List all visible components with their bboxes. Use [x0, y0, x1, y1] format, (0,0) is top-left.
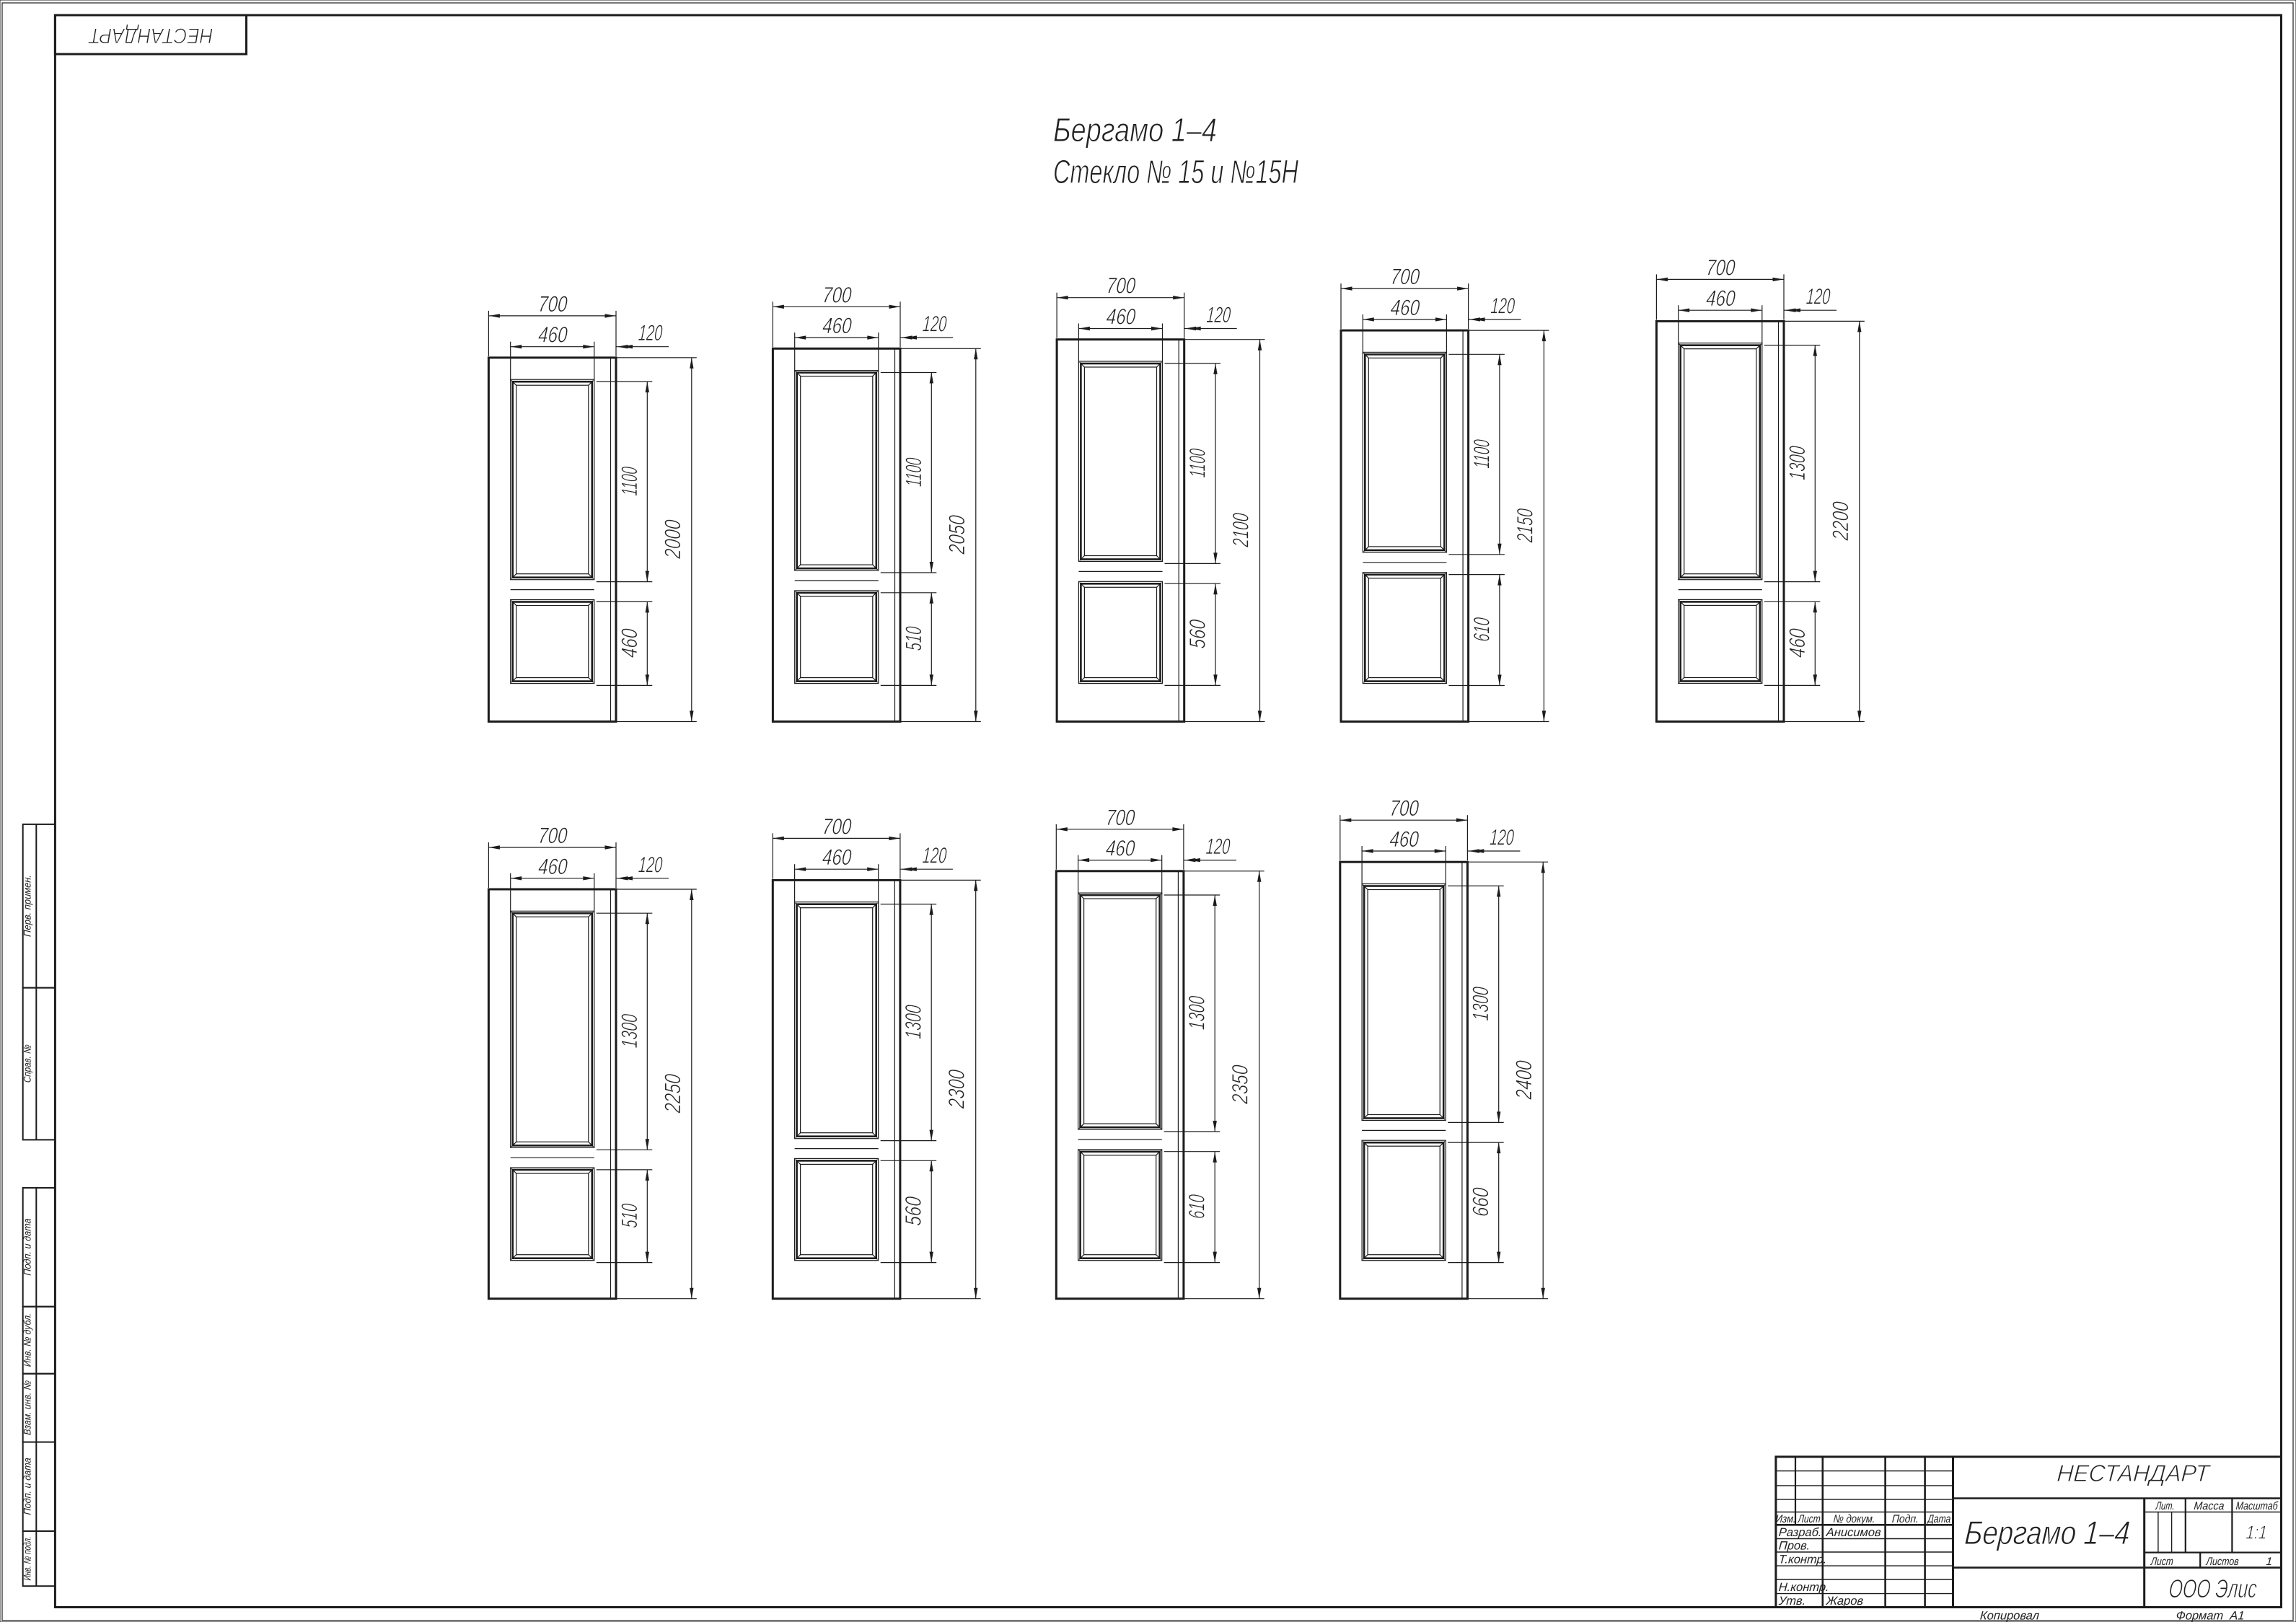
svg-text:120: 120 [1206, 302, 1232, 327]
svg-text:А1: А1 [2229, 1609, 2246, 1622]
svg-text:660: 660 [1468, 1186, 1493, 1217]
svg-text:2400: 2400 [1511, 1059, 1536, 1101]
svg-text:120: 120 [638, 852, 664, 877]
svg-text:460: 460 [1705, 286, 1736, 311]
svg-text:Дата: Дата [1926, 1513, 1951, 1525]
svg-text:Пров.: Пров. [1778, 1539, 1811, 1553]
svg-text:700: 700 [1105, 805, 1136, 830]
svg-text:700: 700 [1705, 255, 1736, 280]
svg-text:700: 700 [537, 291, 568, 317]
svg-text:700: 700 [1106, 273, 1137, 299]
svg-text:1:1: 1:1 [2246, 1522, 2268, 1543]
svg-text:120: 120 [1489, 825, 1515, 850]
svg-text:460: 460 [1785, 627, 1810, 658]
svg-text:460: 460 [1105, 836, 1136, 861]
svg-text:1300: 1300 [1785, 445, 1810, 480]
svg-text:Подп. и дата: Подп. и дата [22, 1218, 33, 1276]
svg-text:460: 460 [537, 854, 568, 879]
svg-text:ООО Элис: ООО Элис [2168, 1574, 2258, 1603]
svg-text:1: 1 [2266, 1556, 2273, 1568]
svg-text:460: 460 [537, 322, 568, 348]
svg-text:120: 120 [1805, 284, 1831, 309]
svg-text:700: 700 [537, 823, 568, 848]
svg-text:2100: 2100 [1228, 512, 1254, 548]
svg-text:Формат: Формат [2176, 1609, 2224, 1622]
svg-text:1300: 1300 [1468, 986, 1493, 1021]
svg-text:Разраб.: Разраб. [1778, 1525, 1822, 1539]
svg-text:Инв. № дубл.: Инв. № дубл. [22, 1313, 33, 1367]
svg-text:Инв. № подл.: Инв. № подл. [22, 1536, 33, 1581]
svg-text:610: 610 [1469, 617, 1494, 643]
svg-text:700: 700 [822, 814, 853, 839]
svg-text:1100: 1100 [1469, 438, 1494, 469]
svg-text:120: 120 [922, 312, 948, 337]
svg-text:Стекло № 15 и №15Н: Стекло № 15 и №15Н [1053, 153, 1299, 190]
svg-text:460: 460 [1390, 295, 1421, 320]
svg-text:2300: 2300 [944, 1069, 969, 1110]
svg-text:1100: 1100 [617, 466, 642, 496]
svg-text:2250: 2250 [660, 1073, 685, 1114]
svg-text:Бергамо 1–4: Бергамо 1–4 [1053, 111, 1217, 149]
svg-text:Утв.: Утв. [1777, 1594, 1806, 1608]
svg-text:2050: 2050 [944, 514, 969, 555]
svg-text:120: 120 [1490, 293, 1516, 318]
svg-text:1100: 1100 [901, 457, 926, 487]
svg-text:Лист: Лист [1797, 1513, 1821, 1525]
svg-text:510: 510 [901, 625, 926, 651]
svg-text:Т.контр.: Т.контр. [1778, 1553, 1827, 1566]
svg-text:560: 560 [1185, 619, 1210, 650]
svg-text:Анисимов: Анисимов [1825, 1525, 1881, 1539]
svg-text:№ докум.: № докум. [1833, 1513, 1875, 1525]
svg-text:460: 460 [822, 313, 853, 338]
svg-text:Подп. и дата: Подп. и дата [22, 1458, 33, 1515]
svg-text:460: 460 [1389, 827, 1420, 852]
svg-text:510: 510 [617, 1203, 642, 1229]
svg-text:1300: 1300 [617, 1013, 642, 1049]
svg-text:2200: 2200 [1828, 501, 1853, 542]
svg-text:Подп.: Подп. [1891, 1513, 1919, 1525]
svg-text:Копировал: Копировал [1979, 1609, 2039, 1622]
svg-text:1300: 1300 [901, 1004, 926, 1039]
svg-text:НЕСТАНДАРТ: НЕСТАНДАРТ [87, 24, 213, 48]
svg-text:Справ. №: Справ. № [22, 1044, 33, 1083]
svg-text:700: 700 [822, 282, 853, 307]
svg-text:2350: 2350 [1228, 1064, 1253, 1105]
svg-text:460: 460 [1106, 304, 1137, 330]
svg-text:Листов: Листов [2205, 1556, 2239, 1568]
svg-text:120: 120 [1205, 834, 1231, 859]
svg-text:Изм.: Изм. [1775, 1513, 1796, 1525]
svg-text:Жаров: Жаров [1825, 1594, 1864, 1608]
svg-text:120: 120 [638, 320, 664, 345]
svg-text:700: 700 [1389, 795, 1420, 821]
svg-text:Лит.: Лит. [2155, 1500, 2175, 1512]
svg-text:Масса: Масса [2194, 1500, 2225, 1512]
svg-text:2000: 2000 [660, 519, 685, 560]
svg-text:Бергамо 1–4: Бергамо 1–4 [1963, 1514, 2132, 1551]
svg-text:560: 560 [901, 1196, 926, 1227]
svg-text:1100: 1100 [1185, 448, 1210, 478]
svg-text:700: 700 [1390, 264, 1421, 289]
svg-text:120: 120 [922, 843, 948, 868]
svg-text:Масштаб: Масштаб [2235, 1500, 2279, 1512]
svg-text:Перв. примен.: Перв. примен. [22, 874, 33, 937]
svg-text:Н.контр.: Н.контр. [1778, 1580, 1829, 1594]
svg-text:2150: 2150 [1512, 508, 1537, 544]
svg-text:Взам. инв. №: Взам. инв. № [22, 1380, 33, 1435]
svg-text:460: 460 [822, 845, 853, 870]
svg-text:460: 460 [617, 627, 642, 658]
svg-text:1300: 1300 [1184, 995, 1210, 1031]
svg-text:НЕСТАНДАРТ: НЕСТАНДАРТ [2056, 1460, 2212, 1487]
svg-text:Лист: Лист [2150, 1556, 2173, 1568]
svg-text:610: 610 [1184, 1194, 1210, 1220]
